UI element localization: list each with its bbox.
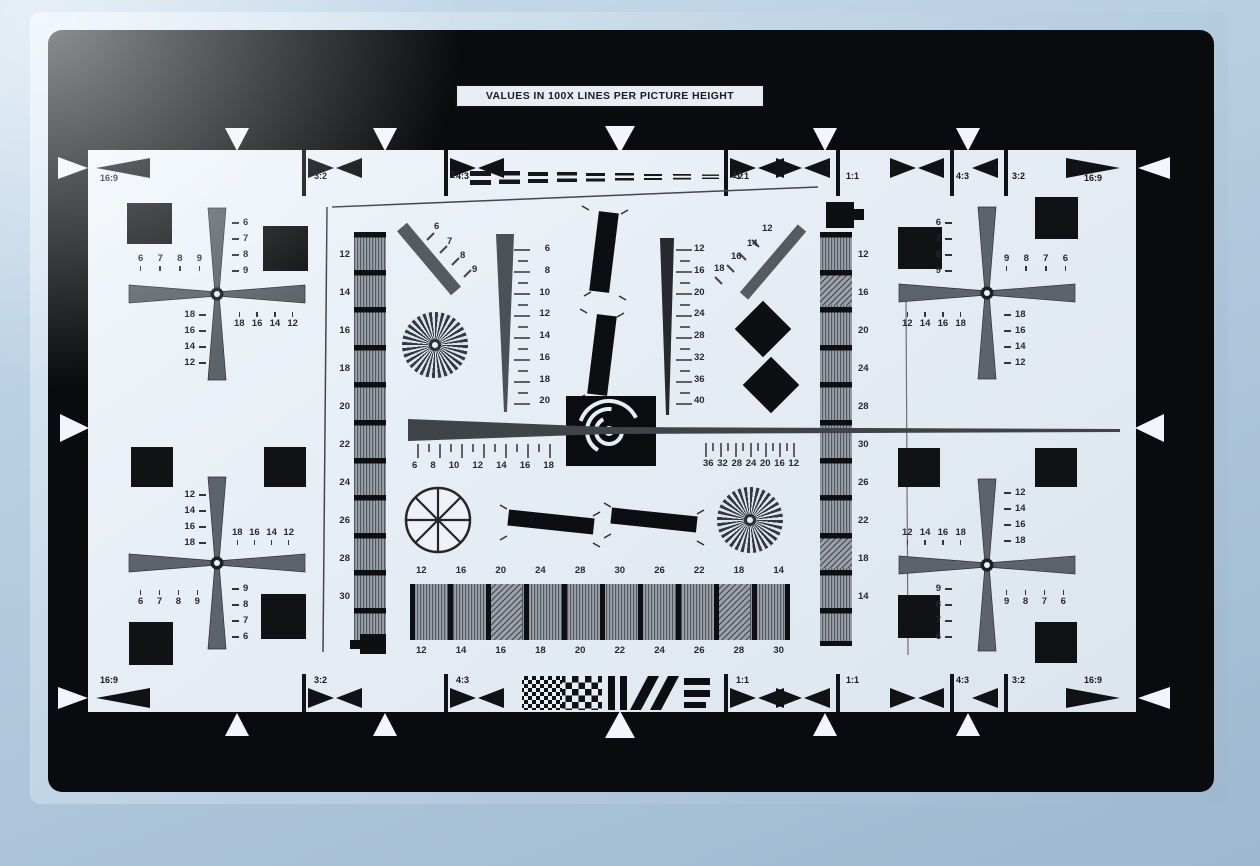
chart-white-field [88,150,1136,712]
siemens-star-right [717,487,783,553]
chart-title: VALUES IN 100X LINES PER PICTURE HEIGHT [455,84,765,108]
test-chart-photo: VALUES IN 100X LINES PER PICTURE HEIGHT [0,0,1260,866]
siemens-star-left [402,312,468,378]
